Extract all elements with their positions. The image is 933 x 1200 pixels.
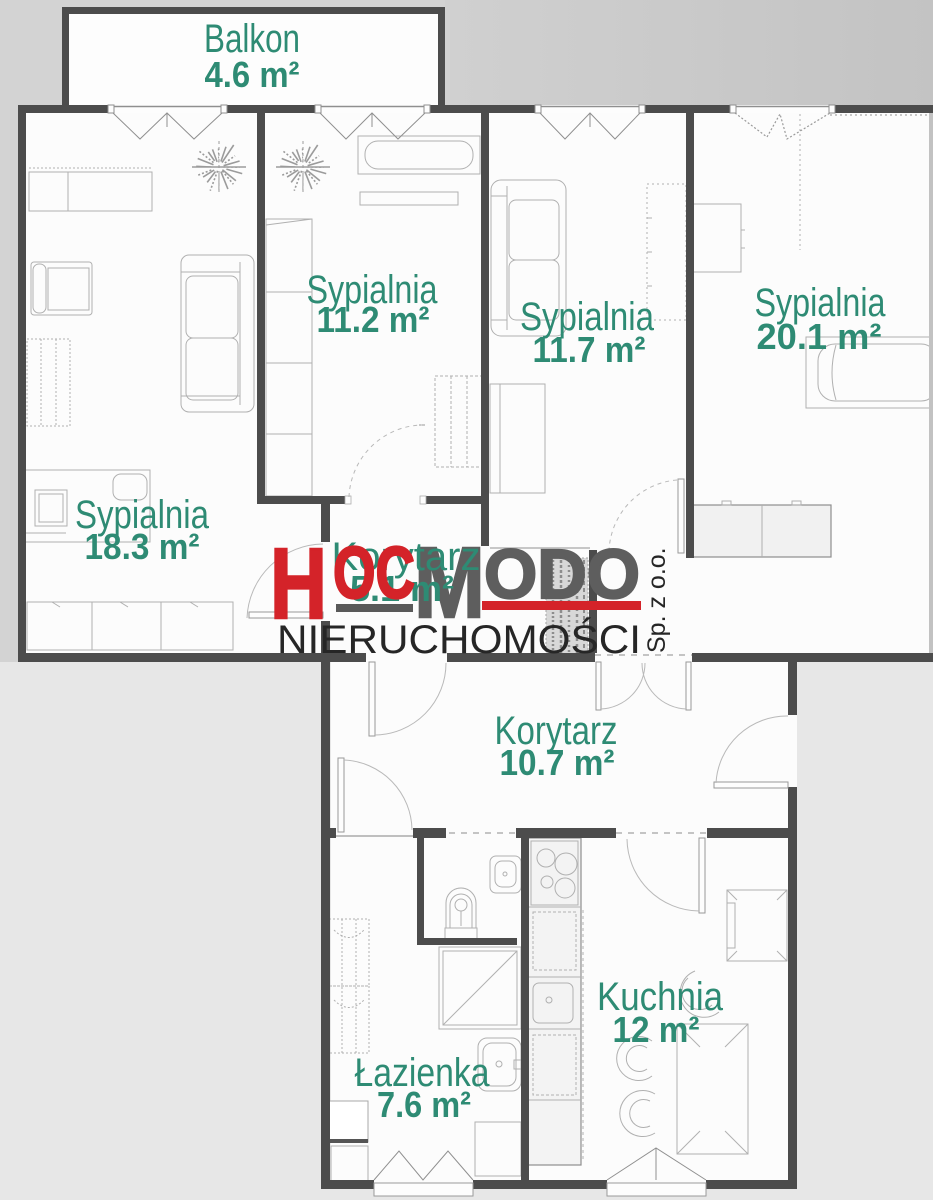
svg-text:NIERUCHOMOŚCI: NIERUCHOMOŚCI <box>277 616 641 662</box>
svg-text:OC: OC <box>333 533 415 614</box>
svg-text:11.7 m²: 11.7 m² <box>533 329 646 370</box>
svg-text:10.7 m²: 10.7 m² <box>500 742 615 783</box>
svg-text:18.3 m²: 18.3 m² <box>85 526 200 567</box>
svg-text:20.1 m²: 20.1 m² <box>757 316 882 357</box>
svg-text:7.6 m²: 7.6 m² <box>377 1084 471 1125</box>
svg-text:Sp. z o.o.: Sp. z o.o. <box>643 547 671 653</box>
svg-text:4.6 m²: 4.6 m² <box>205 54 300 95</box>
svg-text:12 m²: 12 m² <box>613 1009 700 1050</box>
svg-text:11.2 m²: 11.2 m² <box>317 299 430 340</box>
